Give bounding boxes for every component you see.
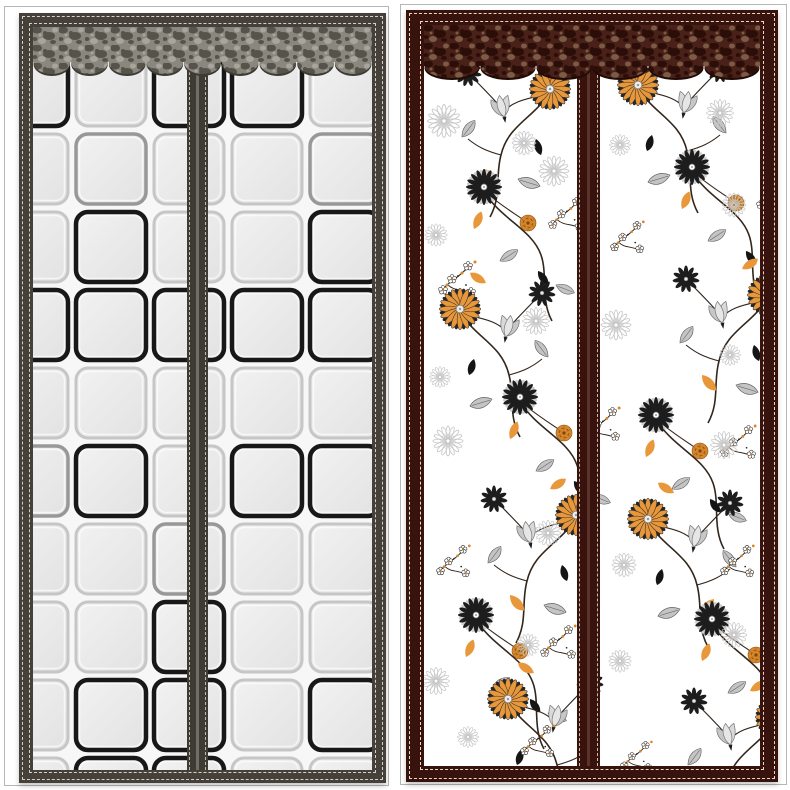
square-mesh-area bbox=[33, 27, 372, 770]
brown-lace-valance bbox=[424, 25, 760, 81]
square-screen-door bbox=[19, 13, 386, 783]
divider-stitch-right bbox=[597, 25, 598, 766]
divider-stitch-right bbox=[205, 27, 206, 770]
product-photo-canvas bbox=[0, 0, 790, 790]
divider-center-seam bbox=[587, 25, 590, 766]
floral-mesh-area bbox=[424, 25, 760, 766]
left-magnetic-divider-strip bbox=[187, 27, 208, 770]
divider-stitch-left bbox=[189, 27, 190, 770]
divider-center-seam bbox=[196, 27, 199, 770]
left-door-photo bbox=[4, 6, 389, 786]
floral-screen-door bbox=[406, 10, 778, 782]
grey-lace-valance bbox=[33, 27, 372, 77]
right-door-photo bbox=[400, 4, 787, 785]
right-magnetic-divider-strip bbox=[577, 25, 600, 766]
divider-stitch-left bbox=[579, 25, 580, 766]
